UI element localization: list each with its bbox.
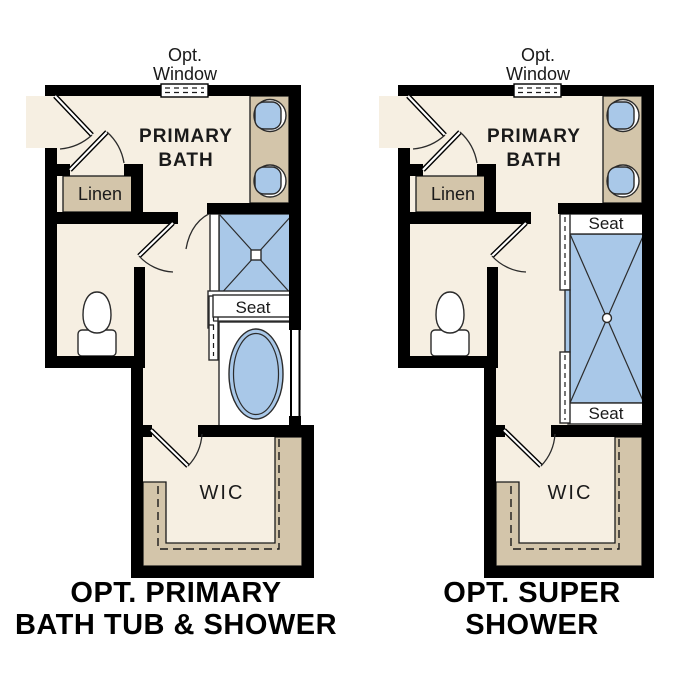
linen-label: Linen bbox=[78, 184, 122, 204]
bathtub-icon bbox=[219, 322, 298, 428]
caption-line2: BATH TUB & SHOWER bbox=[15, 609, 337, 641]
entry-floor-stub-left bbox=[26, 96, 57, 148]
opt-window-label-line2: Window bbox=[153, 64, 218, 84]
wic-label: WIC bbox=[200, 482, 245, 504]
room-label-line1: PRIMARY bbox=[139, 126, 233, 147]
super-shower-icon: Seat Seat bbox=[560, 214, 644, 424]
floorplan-diagram: Seat bbox=[0, 0, 687, 687]
opt-window-label-line1: Opt. bbox=[168, 45, 202, 65]
shower-seat-bottom: Seat bbox=[568, 403, 644, 424]
sink-icon bbox=[254, 165, 286, 197]
seat-top-label: Seat bbox=[589, 214, 624, 233]
wic-label: WIC bbox=[548, 482, 593, 504]
seat-bottom-label: Seat bbox=[589, 404, 624, 423]
sink-icon bbox=[607, 165, 639, 197]
room-label-line1: PRIMARY bbox=[487, 126, 581, 147]
floor-plan-left: Seat bbox=[15, 45, 337, 641]
caption-line2: SHOWER bbox=[465, 609, 599, 641]
room-label-line2: BATH bbox=[506, 150, 561, 171]
sink-icon bbox=[254, 100, 286, 132]
opt-window-icon bbox=[161, 84, 208, 97]
opt-window-label-line2: Window bbox=[506, 64, 571, 84]
opt-window-icon bbox=[514, 84, 561, 97]
floor-plan-right: Seat Seat bbox=[379, 45, 654, 641]
tub-window-icon bbox=[289, 328, 301, 418]
shower-glass bbox=[210, 214, 219, 296]
opt-window-label-line1: Opt. bbox=[521, 45, 555, 65]
shower-seat-top: Seat bbox=[568, 214, 644, 234]
entry-floor-stub-right bbox=[379, 96, 410, 148]
linen-label: Linen bbox=[431, 184, 475, 204]
sink-icon bbox=[607, 100, 639, 132]
room-label-line2: BATH bbox=[158, 150, 213, 171]
seat-label: Seat bbox=[236, 298, 271, 317]
caption-line1: OPT. SUPER bbox=[443, 577, 620, 609]
caption-line1: OPT. PRIMARY bbox=[70, 577, 281, 609]
floorplan-canvas: Seat bbox=[0, 0, 687, 687]
